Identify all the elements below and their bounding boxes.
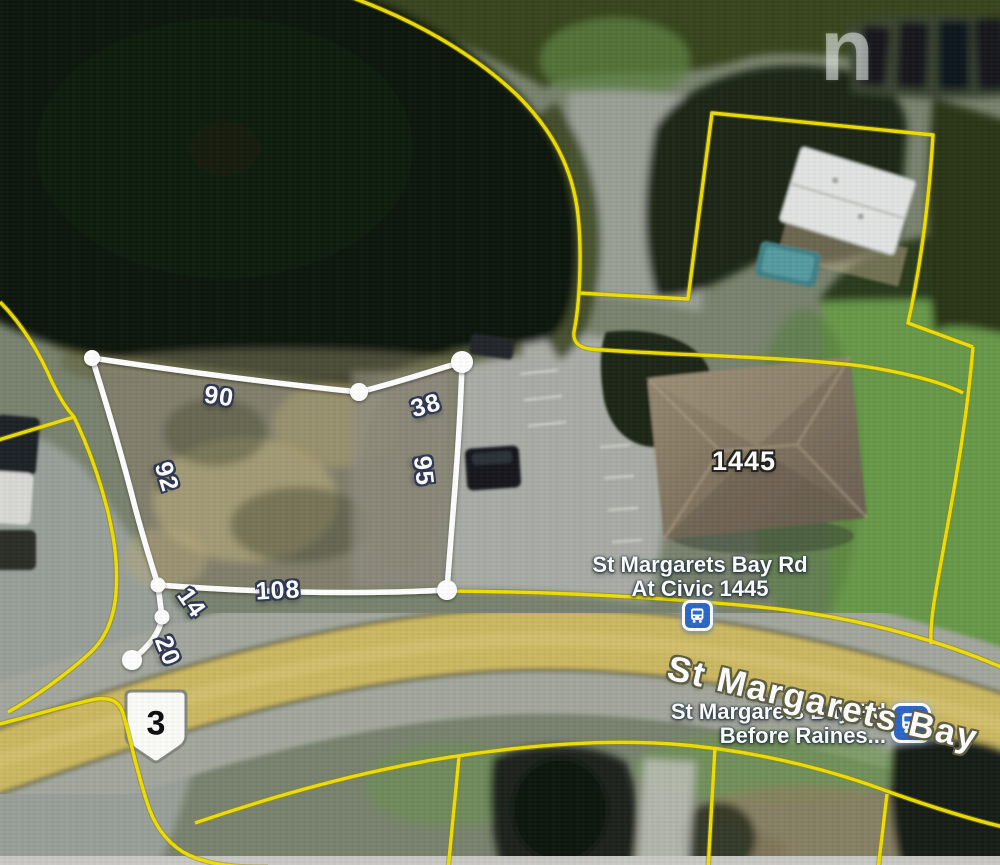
bus-stop-icon[interactable] — [682, 600, 713, 631]
measurement-label-top: 90 — [202, 381, 236, 414]
bus-glyph — [688, 606, 707, 625]
civic-number-label: 1445 — [712, 446, 776, 477]
bus-stop-line2: At Civic 1445 — [542, 577, 858, 601]
bus-stop-line1: St Margarets Bay Rd — [542, 553, 858, 577]
measurement-label-bottom: 108 — [255, 575, 301, 606]
watermark: n — [820, 6, 874, 94]
bus-stop-label-at-civic-1445: St Margarets Bay Rd At Civic 1445 — [542, 553, 858, 601]
measurement-label-right: 95 — [407, 454, 439, 487]
map-container[interactable]: 3 — [0, 0, 1000, 865]
